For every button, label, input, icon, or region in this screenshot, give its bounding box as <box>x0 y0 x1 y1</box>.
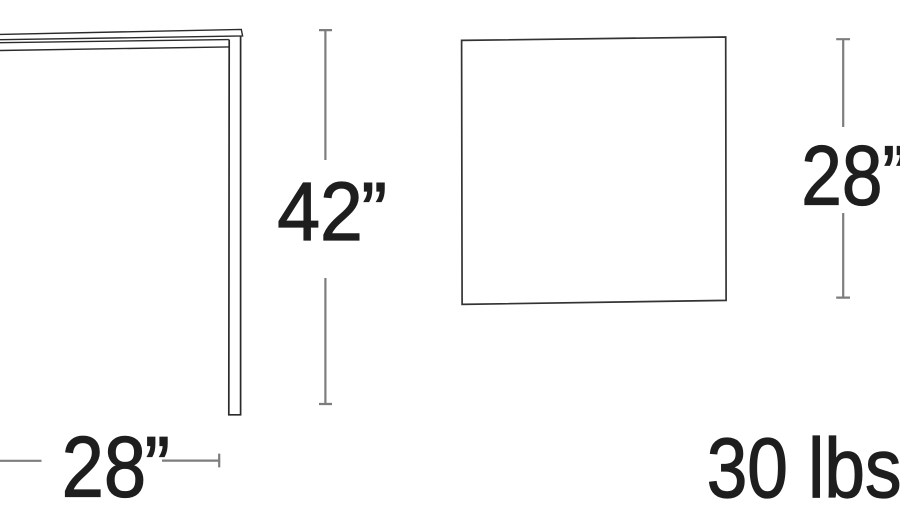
svg-text:28”: 28” <box>801 128 900 222</box>
svg-text:30 lbs: 30 lbs <box>707 420 900 515</box>
svg-text:28”: 28” <box>62 419 170 516</box>
svg-text:42”: 42” <box>277 165 387 257</box>
